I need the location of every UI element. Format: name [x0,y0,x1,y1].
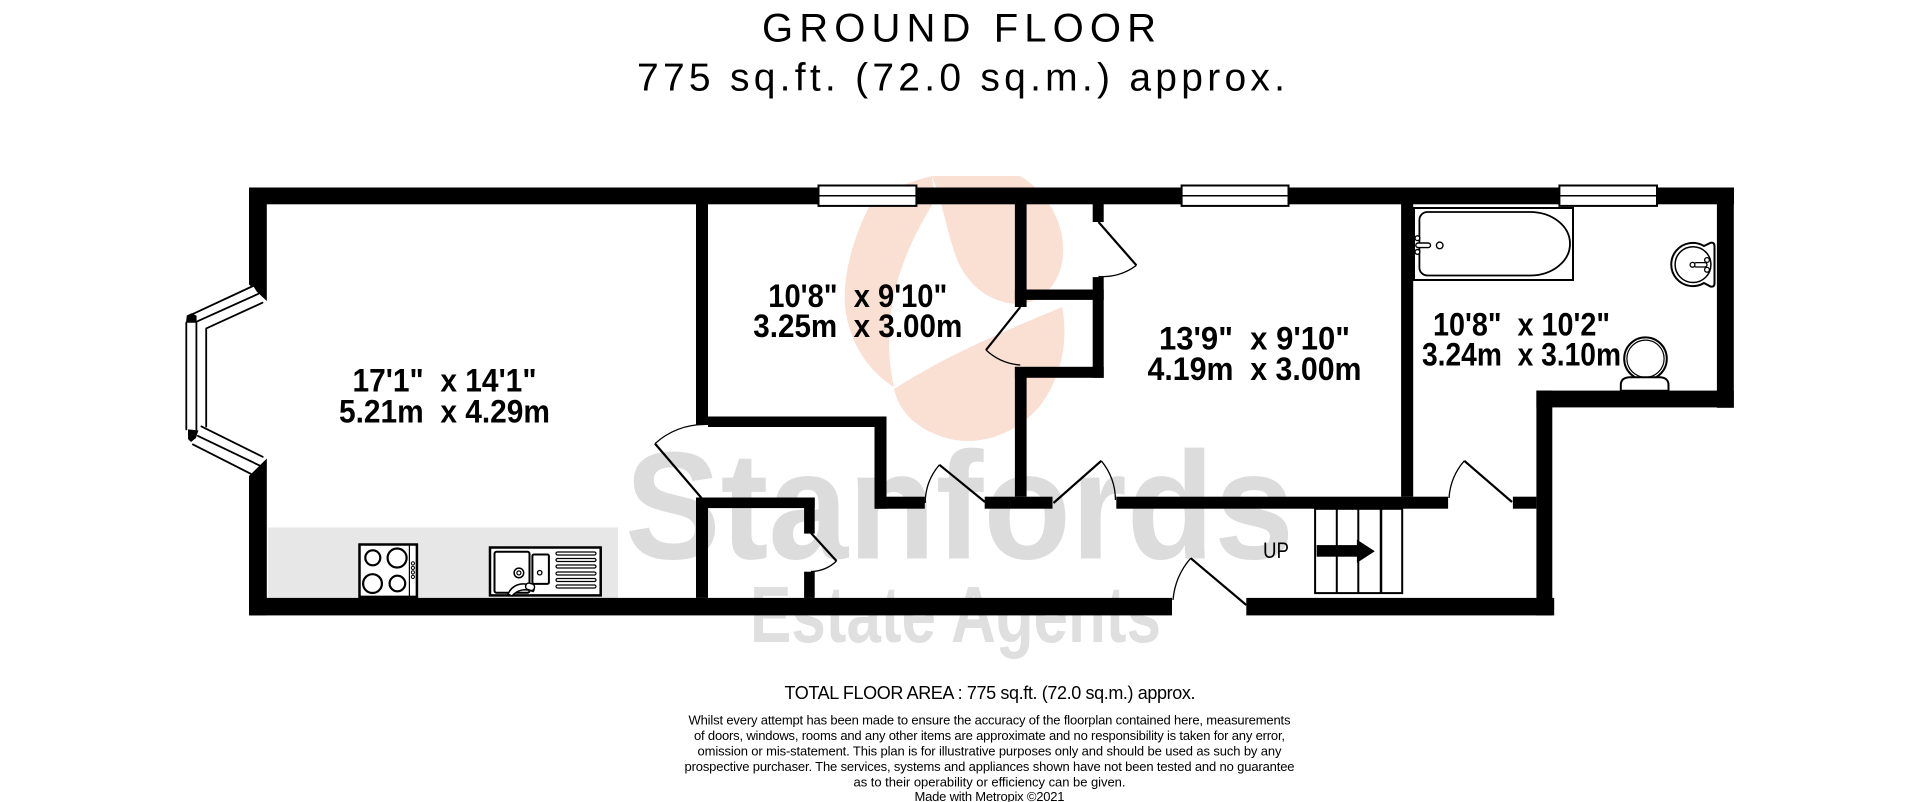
svg-text:3.25m x 3.00m: 3.25m x 3.00m [753,308,962,344]
svg-text:4.19m x 3.00m: 4.19m x 3.00m [1148,351,1362,387]
svg-text:prospective purchaser. The ser: prospective purchaser. The services, sys… [685,759,1295,774]
svg-text:3.24m x 3.10m: 3.24m x 3.10m [1422,337,1621,373]
svg-text:TOTAL FLOOR AREA : 775 sq.ft.: TOTAL FLOOR AREA : 775 sq.ft. (72.0 sq.m… [785,683,1196,703]
svg-text:Whilst every attempt has been: Whilst every attempt has been made to en… [689,713,1292,728]
svg-text:UP: UP [1263,538,1289,563]
svg-text:of doors, windows, rooms and a: of doors, windows, rooms and any other i… [694,728,1285,743]
svg-text:775 sq.ft. (72.0 sq.m.) approx: 775 sq.ft. (72.0 sq.m.) approx. [637,57,1285,100]
svg-text:Made with Metropix ©2021: Made with Metropix ©2021 [915,789,1065,802]
svg-text:GROUND FLOOR: GROUND FLOOR [762,7,1156,51]
svg-text:5.21m x 4.29m: 5.21m x 4.29m [339,394,550,430]
svg-text:as to their operability or eff: as to their operability or efficiency ca… [854,775,1126,790]
svg-text:omission or mis-statement. Thi: omission or mis-statement. This plan is … [698,744,1283,759]
